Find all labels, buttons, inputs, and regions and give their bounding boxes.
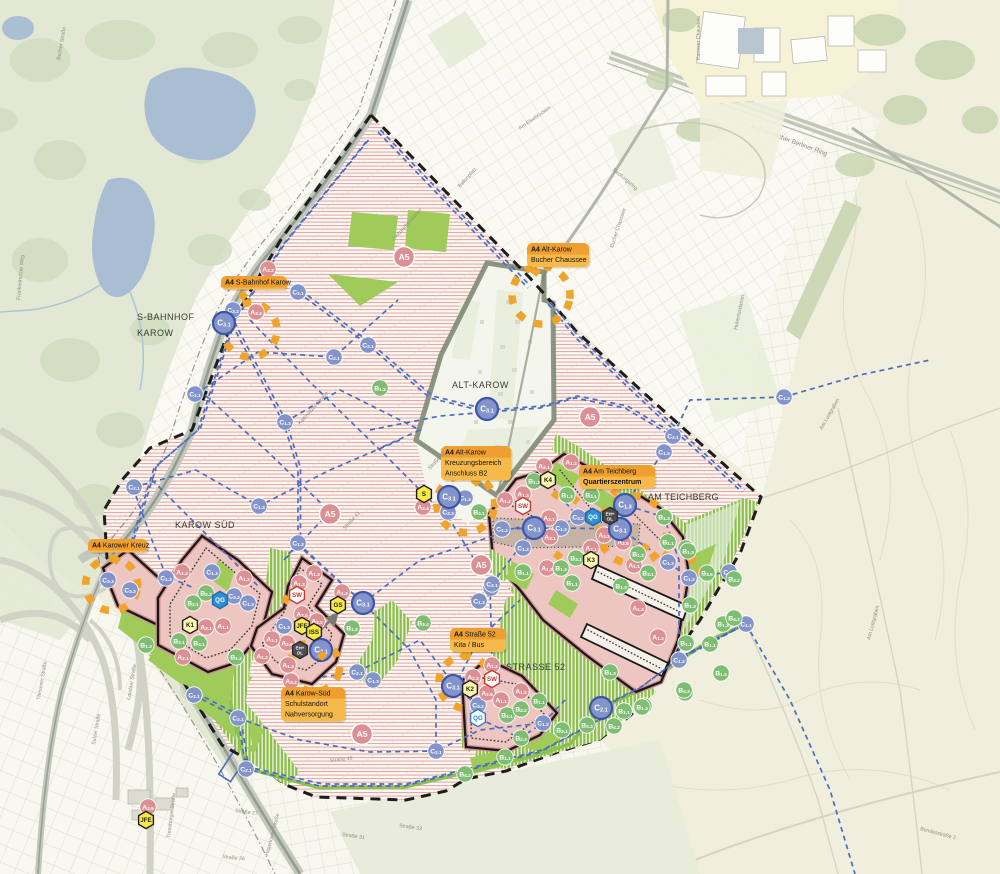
- svg-text:QG: QG: [215, 597, 225, 604]
- svg-text:STRASSE 52: STRASSE 52: [506, 662, 566, 672]
- svg-text:A5: A5: [476, 560, 487, 570]
- svg-text:Kita / Bus: Kita / Bus: [454, 642, 484, 649]
- svg-text:SW: SW: [487, 676, 497, 683]
- svg-text:KAROW SÜD: KAROW SÜD: [175, 520, 235, 530]
- svg-text:A4 S-Bahnhof Karow: A4 S-Bahnhof Karow: [225, 280, 292, 287]
- svg-text:AM TEICHBERG: AM TEICHBERG: [648, 492, 719, 502]
- svg-text:Karower Chaussee: Karower Chaussee: [696, 16, 702, 60]
- svg-text:DL: DL: [297, 650, 303, 655]
- svg-text:Schulstandort: Schulstandort: [285, 701, 328, 708]
- svg-text:Kreuzungsbereich: Kreuzungsbereich: [445, 460, 502, 467]
- svg-text:A5: A5: [585, 412, 596, 422]
- svg-text:Nahversorgung: Nahversorgung: [285, 712, 333, 719]
- svg-text:ISS: ISS: [309, 629, 319, 636]
- svg-text:Anschluss B2: Anschluss B2: [445, 471, 488, 478]
- svg-text:A4 Karow-Süd: A4 Karow-Süd: [285, 691, 331, 698]
- svg-text:Bucher Chaussee: Bucher Chaussee: [531, 257, 587, 264]
- svg-text:A4 Am Teichberg: A4 Am Teichberg: [583, 469, 636, 476]
- svg-text:A4 Karower Kreuz: A4 Karower Kreuz: [92, 543, 150, 550]
- svg-text:A5: A5: [399, 252, 410, 262]
- svg-text:Quartierszentrum: Quartierszentrum: [583, 479, 641, 486]
- svg-text:K3: K3: [587, 557, 595, 564]
- svg-text:JFE: JFE: [140, 817, 151, 824]
- svg-text:QG: QG: [473, 715, 483, 722]
- svg-text:K2: K2: [466, 686, 474, 693]
- svg-text:A4 Alt-Karow: A4 Alt-Karow: [531, 247, 573, 254]
- svg-text:K4: K4: [544, 477, 552, 484]
- svg-text:DL: DL: [607, 516, 613, 521]
- svg-text:ALT-KAROW: ALT-KAROW: [452, 380, 509, 390]
- svg-text:QG: QG: [588, 514, 598, 521]
- svg-text:S: S: [422, 491, 426, 498]
- svg-text:KAROW: KAROW: [137, 328, 174, 338]
- svg-text:A4 Straße 52: A4 Straße 52: [454, 632, 496, 639]
- svg-text:SW: SW: [518, 503, 528, 510]
- svg-text:SW: SW: [292, 592, 302, 599]
- svg-text:A4 Alt-Karow: A4 Alt-Karow: [445, 450, 487, 457]
- svg-text:A5: A5: [325, 509, 336, 519]
- svg-text:S-BAHNHOF: S-BAHNHOF: [137, 312, 195, 322]
- svg-text:A5: A5: [357, 729, 368, 739]
- svg-text:K1: K1: [186, 622, 194, 629]
- svg-text:GS: GS: [334, 602, 343, 609]
